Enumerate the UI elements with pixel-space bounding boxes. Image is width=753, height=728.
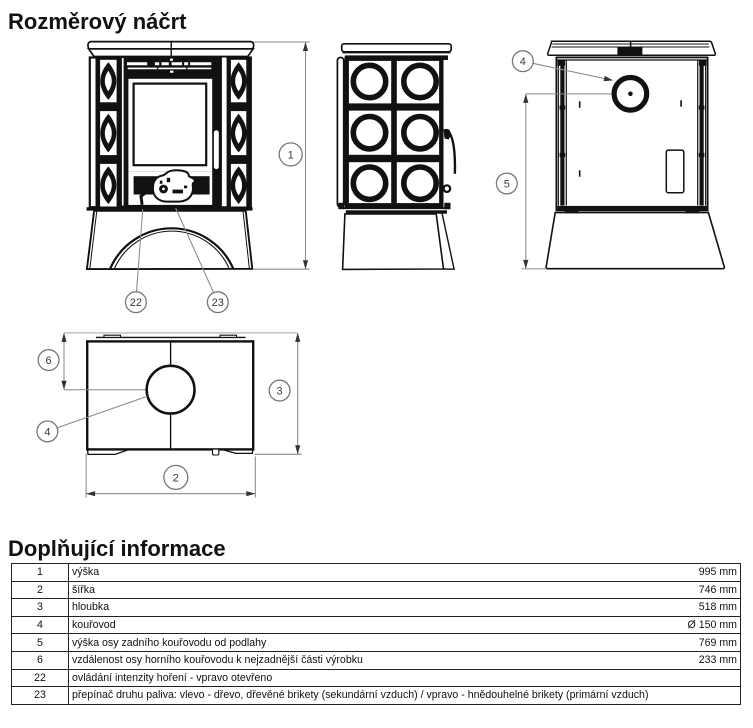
svg-text:23: 23 bbox=[212, 297, 224, 309]
svg-text:22: 22 bbox=[130, 297, 142, 309]
svg-text:3: 3 bbox=[277, 386, 283, 398]
svg-text:4: 4 bbox=[520, 56, 526, 68]
svg-text:5: 5 bbox=[504, 179, 510, 191]
svg-text:1: 1 bbox=[288, 149, 294, 161]
svg-text:4: 4 bbox=[44, 426, 50, 438]
svg-text:6: 6 bbox=[46, 355, 52, 367]
svg-text:2: 2 bbox=[173, 472, 179, 484]
